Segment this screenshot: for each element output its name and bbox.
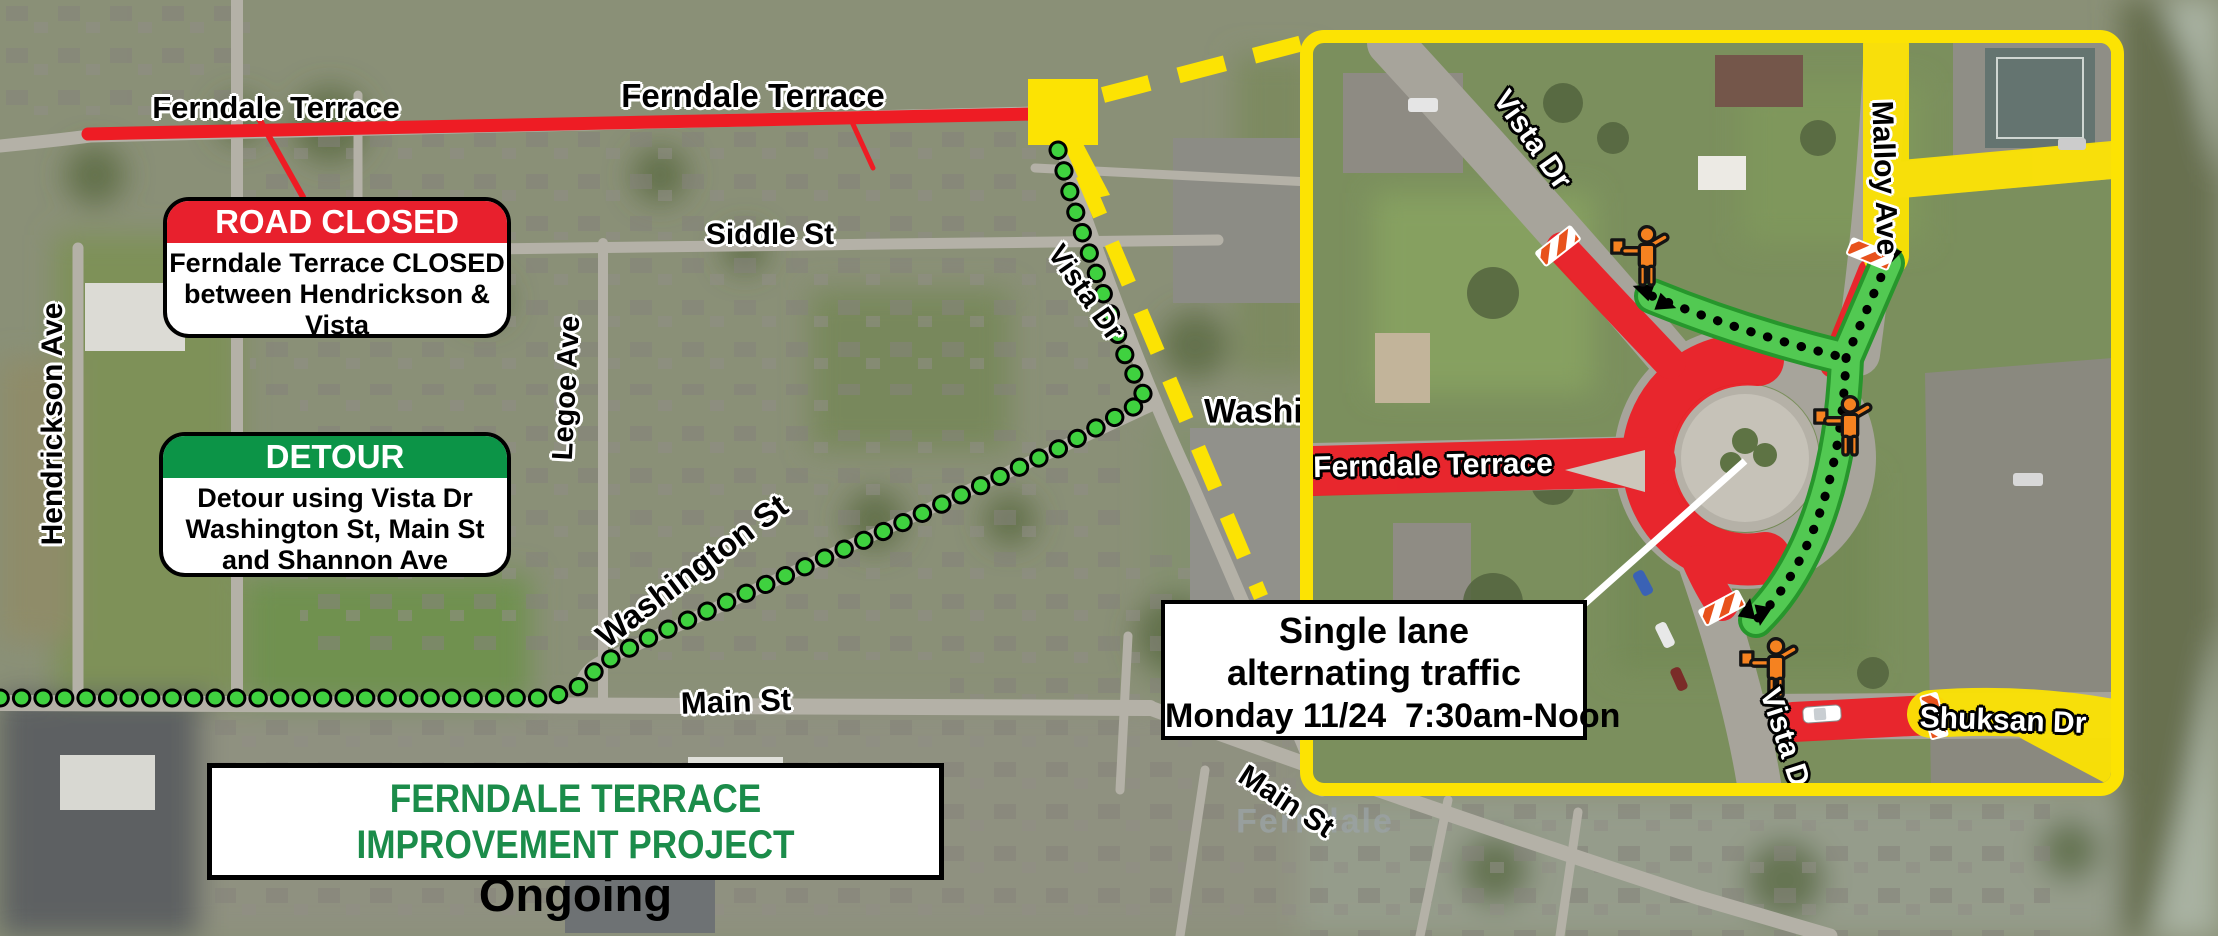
tennis-courts xyxy=(1985,48,2095,148)
street-label-ferndale-terrace-west: Ferndale Terrace xyxy=(152,90,400,126)
project-status: Ongoing xyxy=(212,868,939,922)
inset-label-malloy-ave: Malloy Ave xyxy=(1864,100,1903,256)
street-label-ferndale-terrace-east: Ferndale Terrace xyxy=(621,77,885,115)
single-lane-line-2: alternating traffic xyxy=(1165,652,1583,694)
road-closed-notice: ROAD CLOSED Ferndale Terrace CLOSED betw… xyxy=(163,197,511,338)
street-label-siddle-st: Siddle St xyxy=(706,218,834,252)
detour-header: DETOUR xyxy=(163,436,507,478)
detour-notice: DETOUR Detour using Vista Dr Washington … xyxy=(159,432,511,577)
single-lane-line-3: Monday 11/24 7:30am-Noon xyxy=(1165,694,1583,738)
inset-label-shuksan-dr: Shuksan Dr xyxy=(1919,701,2087,741)
project-title-box: FERNDALE TERRACE IMPROVEMENT PROJECT Ong… xyxy=(207,763,944,880)
single-lane-notice: Single lane alternating traffic Monday 1… xyxy=(1161,600,1587,740)
traffic-advisory-map: Ferndale Terrace Ferndale Terrace Siddle… xyxy=(0,0,2218,936)
road-closed-header: ROAD CLOSED xyxy=(167,201,507,243)
detour-line-3: and Shannon Ave xyxy=(163,545,507,576)
road-closed-line-1: Ferndale Terrace CLOSED xyxy=(167,248,507,279)
street-label-main-st: Main St xyxy=(680,682,791,722)
zoom-callout-square xyxy=(1028,79,1098,145)
road-closed-line-2: between Hendrickson & Vista xyxy=(167,279,507,338)
inset-label-ferndale-terrace: Ferndale Terrace xyxy=(1313,447,1553,485)
single-lane-line-1: Single lane xyxy=(1165,610,1583,652)
project-title: FERNDALE TERRACE IMPROVEMENT PROJECT xyxy=(256,776,896,868)
detour-line-2: Washington St, Main St xyxy=(163,514,507,545)
street-label-hendrickson-ave: Hendrickson Ave xyxy=(36,303,70,546)
detour-line-1: Detour using Vista Dr xyxy=(163,483,507,514)
